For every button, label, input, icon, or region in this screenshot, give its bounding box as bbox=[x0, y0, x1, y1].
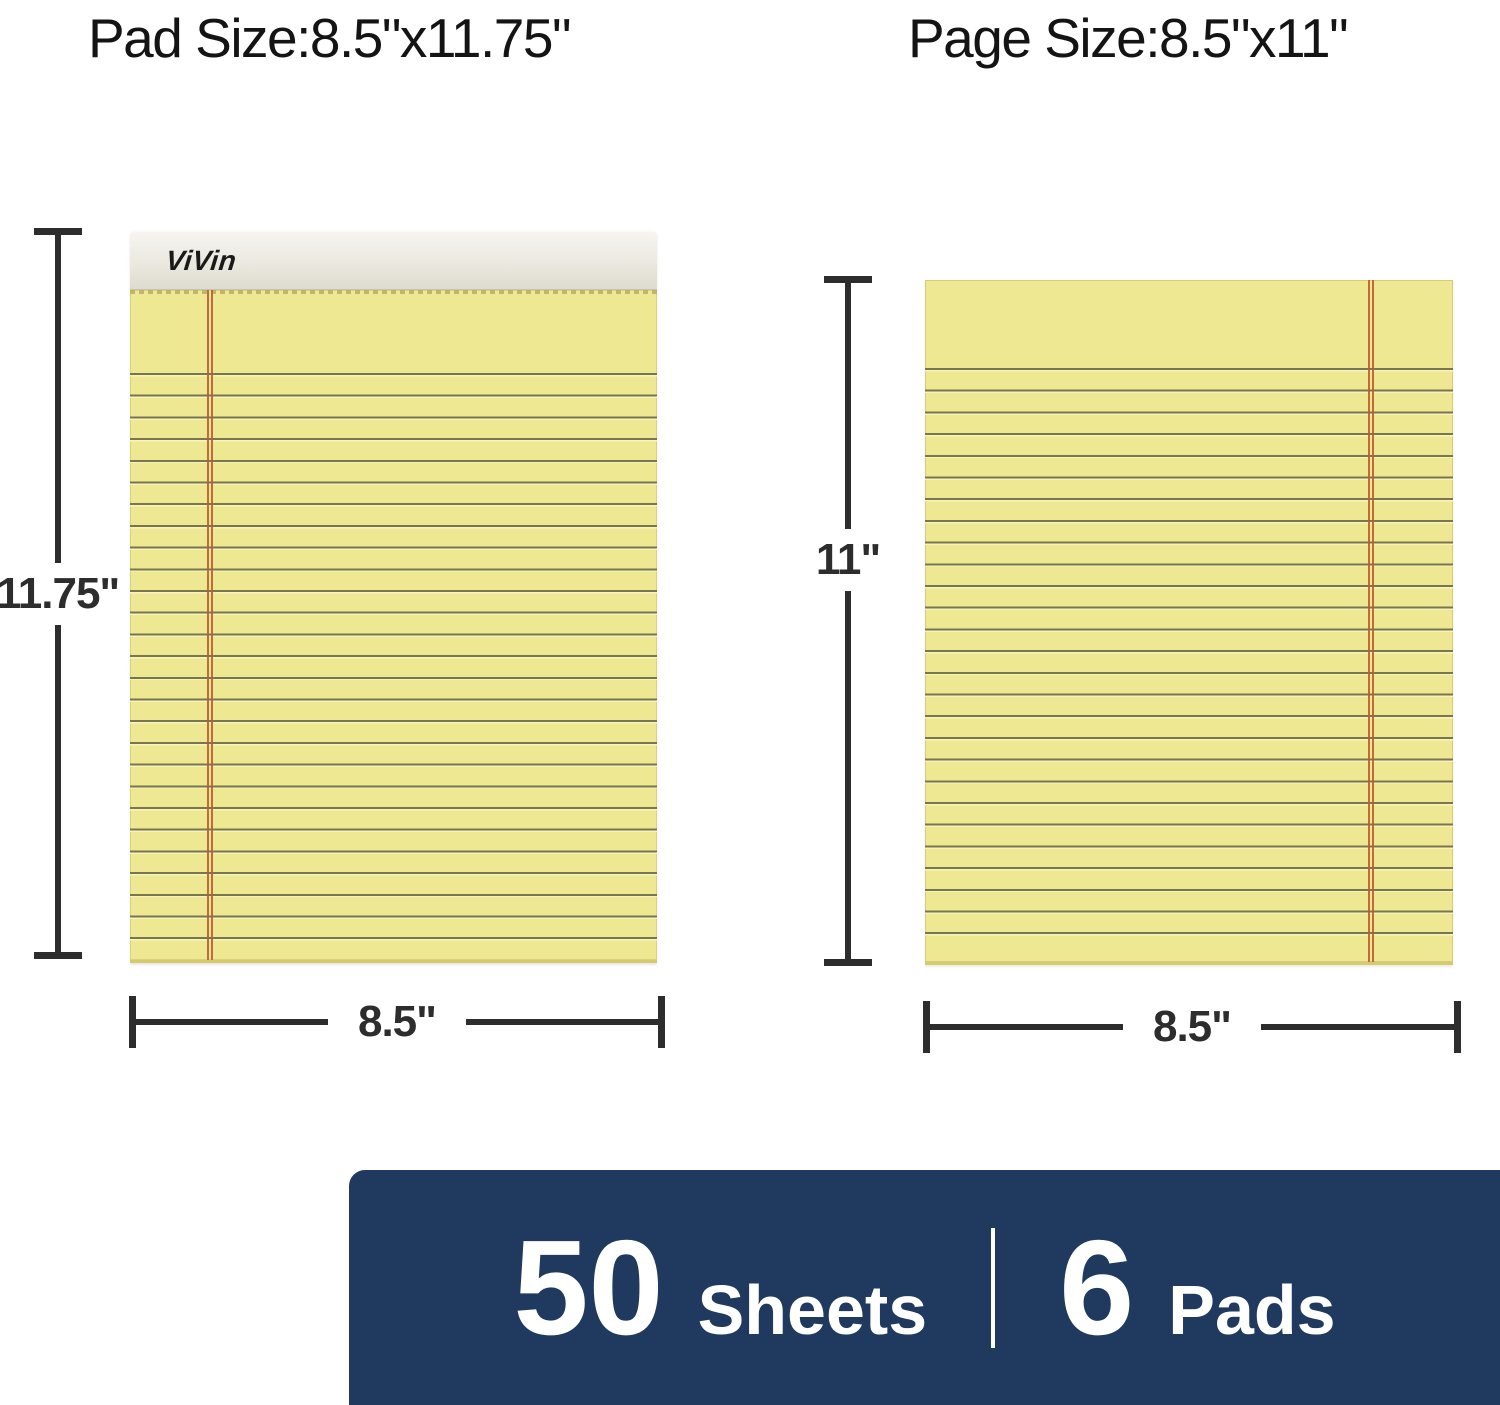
dimension-line bbox=[55, 625, 61, 953]
sheets-label: Sheets bbox=[698, 1275, 928, 1345]
dimension-line bbox=[55, 235, 61, 563]
dimension-cap bbox=[824, 959, 872, 966]
dimension-cap bbox=[824, 276, 872, 283]
page-height-label: 11" bbox=[816, 529, 880, 591]
dimension-line bbox=[466, 1019, 658, 1025]
sheets-count-group: 50 Sheets bbox=[513, 1220, 927, 1355]
page-width-dimension: 8.5" bbox=[923, 1001, 1461, 1053]
page-size-title: Page Size:8.5"x11" bbox=[908, 6, 1347, 70]
pad-size-title: Pad Size:8.5"x11.75" bbox=[88, 6, 570, 70]
page-width-label: 8.5" bbox=[1123, 1005, 1261, 1049]
pad-height-dimension: 11.75" bbox=[34, 228, 82, 959]
dimension-line bbox=[845, 591, 851, 959]
legal-pad-front: ViVin bbox=[130, 230, 657, 963]
pads-count-group: 6 Pads bbox=[1059, 1220, 1335, 1355]
dimension-line bbox=[1261, 1024, 1454, 1030]
product-infographic: Pad Size:8.5"x11.75" Page Size:8.5"x11" … bbox=[0, 0, 1500, 1405]
dimension-line bbox=[845, 283, 851, 529]
margin-line-right-page bbox=[1368, 280, 1374, 962]
pad-height-label: 11.75" bbox=[0, 563, 119, 625]
dimension-cap bbox=[129, 996, 136, 1048]
dimension-cap bbox=[1454, 1001, 1461, 1053]
page-height-dimension: 11" bbox=[824, 276, 872, 966]
brand-logo: ViVin bbox=[164, 245, 238, 277]
sheets-count: 50 bbox=[513, 1220, 663, 1355]
banner-divider bbox=[991, 1228, 995, 1348]
dimension-cap bbox=[923, 1001, 930, 1053]
single-page bbox=[925, 280, 1453, 965]
info-banner: 50 Sheets 6 Pads bbox=[349, 1170, 1500, 1405]
pads-label: Pads bbox=[1168, 1275, 1335, 1345]
dimension-cap bbox=[658, 996, 665, 1048]
pad-width-label: 8.5" bbox=[328, 1000, 466, 1044]
margin-line-left-pad bbox=[207, 290, 213, 960]
pad-binding-strip: ViVin bbox=[130, 230, 657, 290]
dimension-cap bbox=[34, 952, 82, 959]
pads-count: 6 bbox=[1059, 1220, 1134, 1355]
pad-paper bbox=[130, 290, 657, 963]
pad-width-dimension: 8.5" bbox=[129, 996, 665, 1048]
dimension-line bbox=[136, 1019, 328, 1025]
dimension-cap bbox=[34, 228, 82, 235]
dimension-line bbox=[930, 1024, 1123, 1030]
